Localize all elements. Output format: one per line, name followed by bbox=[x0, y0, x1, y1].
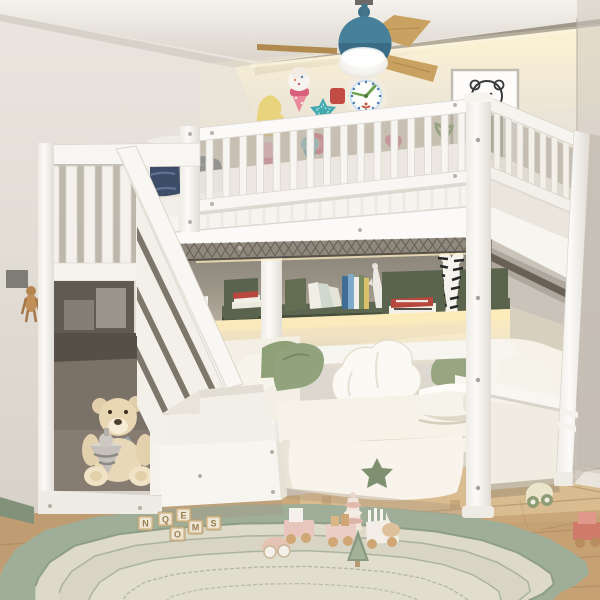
svg-text:Q: Q bbox=[162, 515, 169, 525]
svg-text:E: E bbox=[180, 511, 186, 521]
svg-text:O: O bbox=[174, 530, 181, 540]
svg-text:M: M bbox=[192, 523, 200, 533]
svg-text:N: N bbox=[142, 519, 149, 529]
svg-text:S: S bbox=[210, 519, 216, 529]
